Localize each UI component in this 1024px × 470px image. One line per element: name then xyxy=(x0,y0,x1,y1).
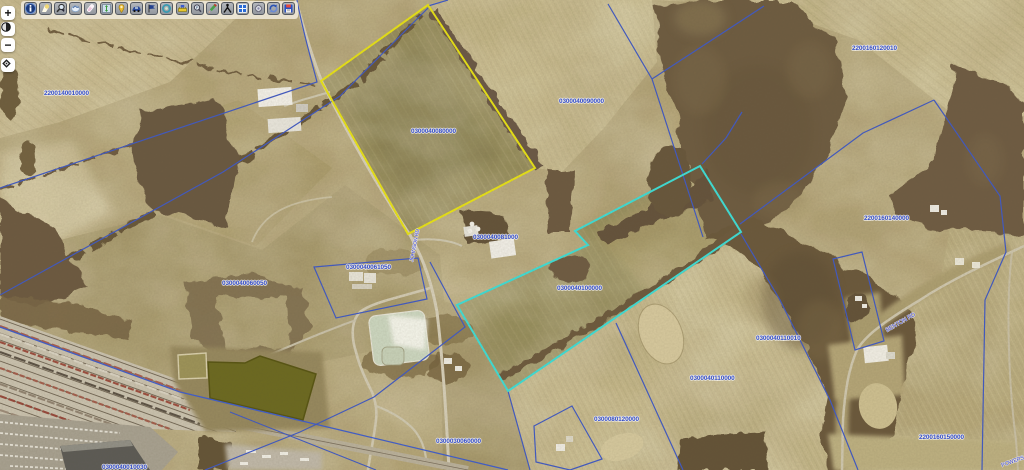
svg-text:P: P xyxy=(195,5,198,10)
